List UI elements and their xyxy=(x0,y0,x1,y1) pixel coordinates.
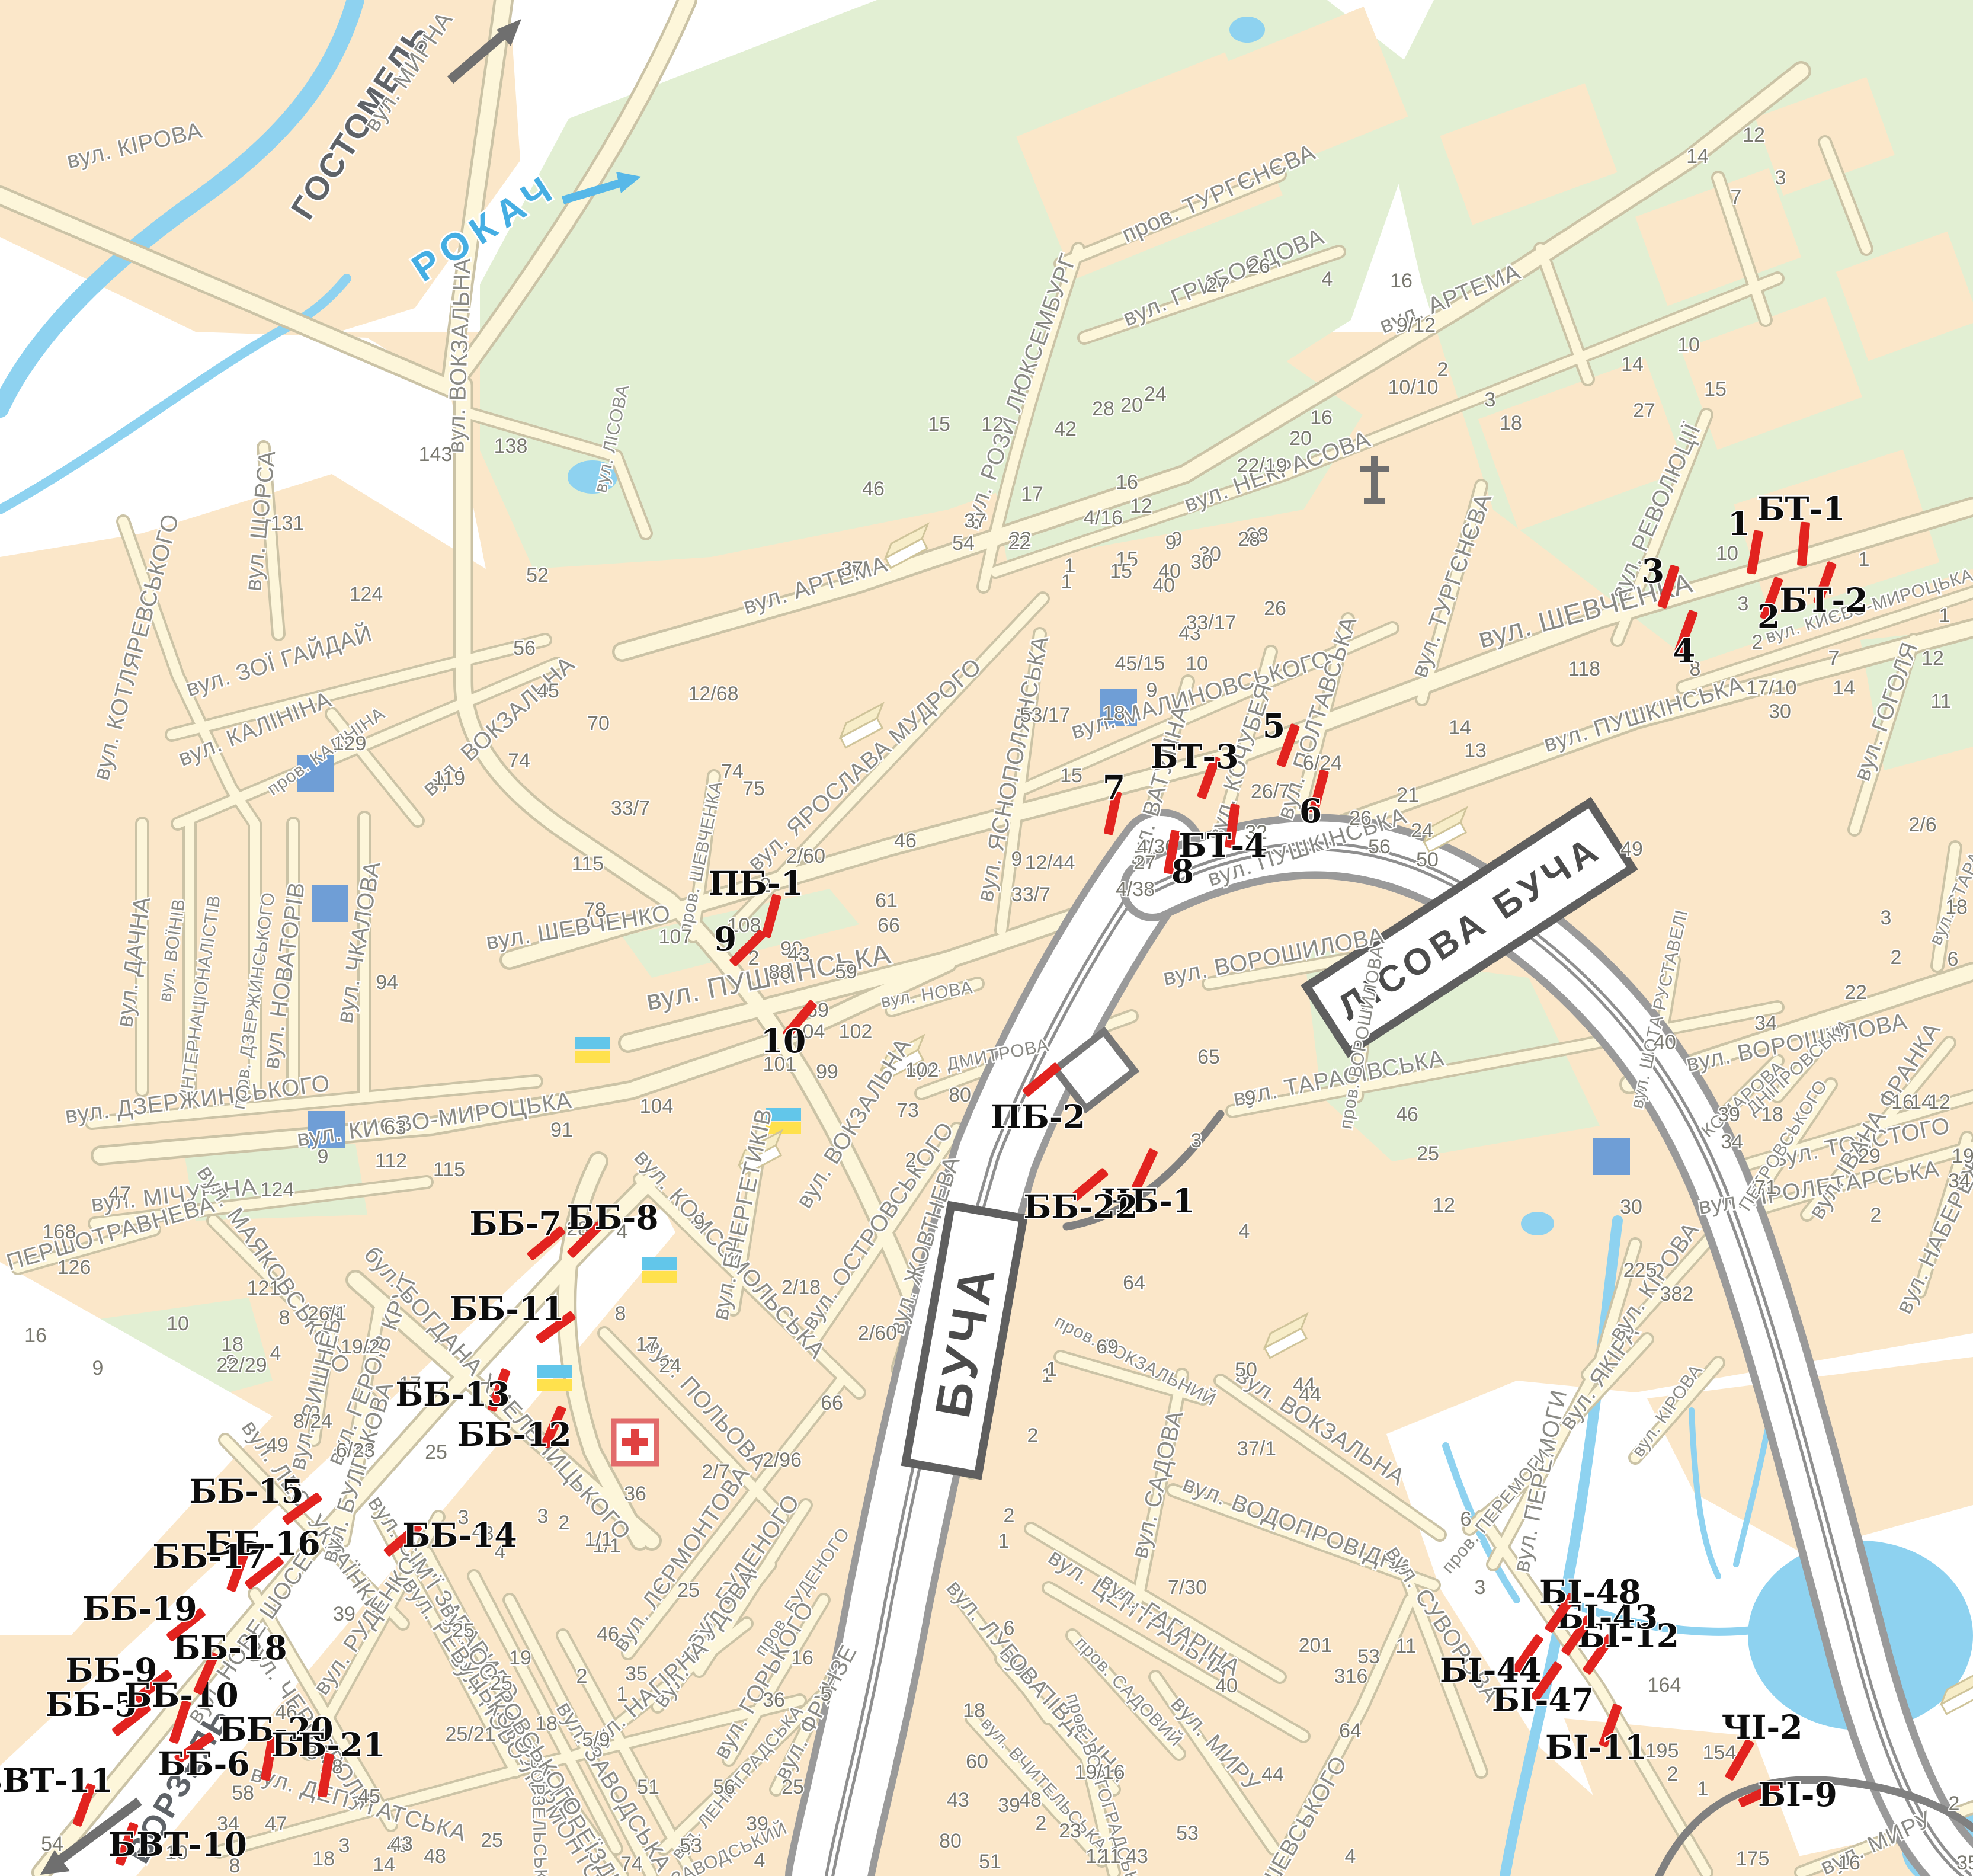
house-number: 15 xyxy=(1704,378,1727,401)
house-number: 126 xyxy=(57,1256,91,1279)
billboard-label-ПБ-1: ПБ-1 xyxy=(709,864,803,902)
house-number: 58 xyxy=(232,1782,254,1804)
house-number: 9 xyxy=(1146,679,1158,702)
house-number: 3 xyxy=(1738,593,1749,615)
house-number: 42 xyxy=(1054,418,1077,440)
house-number: 7 xyxy=(1828,647,1840,670)
house-number: 12 xyxy=(1921,647,1944,670)
city-map: ЛІСОВА БУЧА БУЧА ГОСТОМЕЛЬ ВОРЗЕЛЬ РОКАЧ… xyxy=(0,0,1973,1876)
house-number: 1 xyxy=(1859,548,1870,571)
house-number: 18 xyxy=(1103,702,1125,725)
billboard-label-10: 10 xyxy=(761,1022,806,1060)
blue-building-icon xyxy=(312,885,348,922)
house-number: 19 xyxy=(1952,1145,1973,1167)
house-number: 28 xyxy=(1092,398,1114,420)
billboard-label-ЧІ-2: ЧІ-2 xyxy=(1721,1708,1802,1746)
house-number: 99 xyxy=(816,1061,838,1083)
house-number: 25/21 xyxy=(445,1723,495,1746)
house-number: 34 xyxy=(1721,1131,1743,1153)
house-number: 43 xyxy=(1126,1845,1148,1868)
house-number: 34 xyxy=(1948,1170,1971,1192)
house-number: 53 xyxy=(1176,1822,1199,1845)
house-number: 3 xyxy=(1881,907,1892,929)
house-number: 18 xyxy=(535,1712,558,1735)
house-number: 36 xyxy=(624,1483,646,1505)
house-number: 1 xyxy=(1939,604,1950,627)
house-number: 6 xyxy=(1948,948,1959,971)
house-number: 66 xyxy=(877,914,900,937)
billboard-label-9: 9 xyxy=(714,920,736,958)
house-number: 74 xyxy=(721,760,744,783)
house-number: 9/12 xyxy=(1397,314,1436,337)
house-number: 20 xyxy=(1120,394,1143,417)
house-number: 33/17 xyxy=(1186,612,1236,634)
billboard-label-1: 1 xyxy=(1728,504,1750,543)
house-number: 201 xyxy=(1299,1634,1333,1657)
house-number: 51 xyxy=(979,1851,1001,1873)
house-number: 14 xyxy=(1833,677,1855,699)
house-number: 39 xyxy=(998,1794,1020,1817)
house-number: 129 xyxy=(333,732,367,755)
house-number: 46 xyxy=(862,478,885,500)
house-number: 24 xyxy=(1144,383,1167,405)
house-number: 13 xyxy=(1464,739,1487,762)
billboard-label-БІ-47: БІ-47 xyxy=(1492,1680,1594,1719)
house-number: 30 xyxy=(1769,700,1791,723)
house-number: 23 xyxy=(1059,1820,1081,1842)
house-number: 8 xyxy=(615,1302,626,1325)
house-number: 2 xyxy=(1949,1792,1960,1815)
house-number: 102 xyxy=(905,1059,939,1081)
house-number: 61 xyxy=(875,889,898,912)
house-number: 54 xyxy=(41,1833,63,1855)
house-number: 2 xyxy=(576,1665,588,1688)
house-number: 6 xyxy=(1460,1508,1472,1531)
house-number: 9 xyxy=(694,1211,705,1234)
billboard-label-ПБ-2: ПБ-2 xyxy=(991,1097,1085,1136)
house-number: 12/68 xyxy=(688,683,738,705)
house-number: 3 xyxy=(1475,1576,1486,1599)
house-number: 26/1 xyxy=(308,1302,347,1325)
house-number: 2/6 xyxy=(1908,814,1936,836)
house-number: 4 xyxy=(270,1342,281,1365)
house-number: 66 xyxy=(821,1392,843,1414)
house-number: 53 xyxy=(680,1835,702,1857)
house-number: 1 xyxy=(1046,1358,1058,1381)
house-number: 118 xyxy=(1568,658,1600,680)
house-number: 16 xyxy=(1390,270,1413,292)
house-number: 10 xyxy=(1716,542,1738,565)
house-number: 37 xyxy=(964,510,986,532)
house-number: 78 xyxy=(584,899,606,921)
house-number: 4 xyxy=(1322,268,1333,290)
house-number: 80 xyxy=(939,1830,962,1852)
house-number: 15 xyxy=(1060,764,1082,787)
house-number: 22/19 xyxy=(1237,454,1287,477)
house-number: 14 xyxy=(1686,145,1709,168)
house-number: 107 xyxy=(659,926,693,948)
house-number: 102 xyxy=(839,1020,873,1043)
house-number: 47 xyxy=(265,1813,287,1835)
house-number: 2 xyxy=(1870,1204,1882,1227)
billboard-label-ББ-6: ББ-6 xyxy=(158,1744,249,1783)
house-number: 16 xyxy=(1116,471,1138,494)
house-number: 10 xyxy=(1186,652,1208,675)
house-number: 25 xyxy=(425,1441,447,1464)
house-number: 1 xyxy=(617,1683,628,1705)
house-number: 24 xyxy=(659,1355,681,1377)
house-number: 26 xyxy=(1264,597,1286,620)
house-number: 2 xyxy=(1004,1504,1015,1527)
billboard-label-БТ-2: БТ-2 xyxy=(1779,581,1868,619)
house-number: 2/60 xyxy=(858,1322,897,1344)
billboard-label-ББ-13: ББ-13 xyxy=(395,1375,510,1413)
house-number: 12 xyxy=(1433,1194,1455,1216)
house-number: 316 xyxy=(1334,1665,1368,1688)
house-number: 43 xyxy=(787,943,810,966)
billboard-label-ББ-10: ББ-10 xyxy=(124,1676,238,1714)
billboard-label-БІ-11: БІ-11 xyxy=(1545,1728,1647,1766)
house-number: 11 xyxy=(1100,1845,1120,1868)
house-number: 16 xyxy=(1310,406,1333,429)
house-number: 22 xyxy=(1008,532,1030,554)
house-number: 8 xyxy=(279,1307,290,1329)
house-number: 25 xyxy=(677,1579,700,1602)
billboard-label-ББ-8: ББ-8 xyxy=(566,1198,658,1237)
billboard-label-БТ-1: БТ-1 xyxy=(1757,489,1845,528)
house-number: 5/9 xyxy=(582,1728,610,1751)
house-number: 74 xyxy=(620,1853,643,1875)
house-number: 56 xyxy=(713,1776,735,1798)
house-number: 59 xyxy=(835,961,857,983)
billboard-label-ББ-21: ББ-21 xyxy=(271,1725,385,1764)
house-number: 29 xyxy=(1858,1145,1881,1167)
house-number: 24 xyxy=(1411,819,1433,842)
house-number: 12 xyxy=(981,413,1004,436)
house-number: 22/29 xyxy=(216,1354,267,1376)
house-number: 15 xyxy=(1110,560,1132,582)
house-number: 12/44 xyxy=(1024,851,1075,874)
billboard-label-БВТ-10: БВТ-10 xyxy=(108,1825,247,1864)
house-number: 45/15 xyxy=(1114,652,1165,675)
house-number: 53/17 xyxy=(1020,704,1070,726)
house-number: 7 xyxy=(1731,186,1742,209)
house-number: 14 xyxy=(1449,716,1471,739)
house-number: 36 xyxy=(763,1689,785,1711)
house-number: 119 xyxy=(433,767,465,790)
house-number: 11 xyxy=(1930,690,1951,713)
house-number: 46 xyxy=(894,830,917,852)
house-number: 2 xyxy=(559,1512,570,1534)
house-number: 175 xyxy=(1736,1848,1770,1870)
billboard-label-БТ-3: БТ-3 xyxy=(1150,737,1238,776)
house-number: 28 xyxy=(1238,528,1260,550)
house-number: 26 xyxy=(1248,255,1270,277)
house-number: 6 xyxy=(1004,1617,1015,1640)
billboard-label-ББ-12: ББ-12 xyxy=(457,1415,571,1454)
billboard-label-ББ-19: ББ-19 xyxy=(82,1589,197,1628)
house-number: 195 xyxy=(1645,1740,1679,1762)
house-number: 9 xyxy=(318,1145,329,1168)
house-number: 4 xyxy=(754,1849,766,1872)
house-number: 39 xyxy=(1718,1103,1740,1126)
house-number: 16 xyxy=(24,1324,47,1347)
house-number: 1 xyxy=(998,1530,1010,1552)
house-number: 1/1 xyxy=(584,1528,612,1551)
house-number: 33/7 xyxy=(1011,883,1050,906)
house-number: 11 xyxy=(1395,1635,1416,1657)
billboard-label-6: 6 xyxy=(1299,792,1322,830)
billboard-label-БВТ-11: БВТ-11 xyxy=(0,1761,113,1800)
house-number: 44 xyxy=(1261,1763,1284,1786)
house-number: 112 xyxy=(375,1150,407,1172)
house-number: 124 xyxy=(350,583,383,606)
house-number: 35 xyxy=(1956,1852,1973,1874)
house-number: 49 xyxy=(266,1434,289,1456)
house-number: 10/10 xyxy=(1388,376,1438,399)
house-number: 143 xyxy=(419,443,453,466)
house-number: 14 xyxy=(1621,353,1644,376)
house-number: 6/23 xyxy=(336,1439,375,1462)
house-number: 25 xyxy=(490,1672,513,1695)
house-number: 9 xyxy=(1165,532,1177,554)
house-number: 2 xyxy=(1437,358,1449,381)
house-number: 4 xyxy=(1239,1220,1250,1243)
billboard-label-ББ-18: ББ-18 xyxy=(172,1628,287,1667)
house-number: 75 xyxy=(742,777,765,800)
house-number: 5 xyxy=(821,1683,832,1705)
house-number: 43 xyxy=(390,1833,413,1855)
house-number: 50 xyxy=(1235,1359,1257,1381)
house-number: 3 xyxy=(1191,1129,1202,1152)
house-number: 26 xyxy=(1349,807,1372,830)
house-number: 54 xyxy=(952,532,975,555)
house-number: 40 xyxy=(1215,1675,1238,1697)
house-number: 69 xyxy=(1096,1336,1119,1358)
house-number: 10 xyxy=(166,1312,189,1335)
blue-building-icon xyxy=(1593,1138,1630,1175)
house-number: 27 xyxy=(1133,851,1156,874)
house-number: 30 xyxy=(1190,551,1213,574)
house-number: 12 xyxy=(1928,1091,1950,1113)
house-number: 10 xyxy=(1677,334,1700,356)
house-number: 73 xyxy=(896,1099,919,1122)
house-number: 37 xyxy=(841,558,863,580)
house-number: 15 xyxy=(928,413,950,436)
billboard-label-ББ-7: ББ-7 xyxy=(469,1204,561,1243)
house-number: 17 xyxy=(636,1333,658,1356)
house-number: 46 xyxy=(597,1623,619,1645)
house-number: 121 xyxy=(247,1277,281,1299)
house-number: 65 xyxy=(1197,1046,1220,1068)
house-number: 18 xyxy=(312,1848,335,1870)
house-number: 94 xyxy=(376,971,398,994)
house-number: 18 xyxy=(963,1699,985,1722)
house-number: 44 xyxy=(1299,1384,1321,1406)
house-number: 74 xyxy=(508,750,530,772)
house-number: 37/1 xyxy=(1237,1438,1276,1460)
house-number: 9 xyxy=(1011,848,1023,870)
house-number: 25 xyxy=(452,1619,475,1642)
house-number: 19/16 xyxy=(1074,1761,1125,1784)
house-number: 12 xyxy=(1130,495,1152,517)
house-number: 25 xyxy=(481,1829,503,1852)
house-number: 3 xyxy=(1775,167,1786,189)
house-number: 19 xyxy=(509,1647,531,1669)
house-number: 12 xyxy=(1743,124,1765,146)
house-number: 39 xyxy=(333,1603,355,1625)
house-number: 30 xyxy=(1620,1196,1642,1218)
house-number: 2 xyxy=(905,1149,917,1171)
house-number: 20 xyxy=(1289,427,1312,450)
house-number: 56 xyxy=(1368,835,1391,858)
house-number: 64 xyxy=(1123,1272,1145,1294)
house-number: 131 xyxy=(271,512,305,534)
house-number: 35 xyxy=(625,1663,648,1685)
billboard-label-БТ-4: БТ-4 xyxy=(1178,826,1267,865)
house-number: 2 xyxy=(1027,1424,1039,1447)
billboard-label-5: 5 xyxy=(1263,706,1285,745)
house-number: 71 xyxy=(1754,1176,1777,1199)
billboard-label-4: 4 xyxy=(1673,632,1695,670)
house-number: 60 xyxy=(966,1750,988,1773)
house-number: 49 xyxy=(1620,838,1643,860)
house-number: 104 xyxy=(640,1095,674,1118)
house-number: 18 xyxy=(1761,1103,1783,1126)
billboard-label-ББ-14: ББ-14 xyxy=(402,1516,517,1554)
billboard-label-БІ-48: БІ-48 xyxy=(1539,1573,1641,1611)
house-number: 17/10 xyxy=(1746,677,1796,699)
house-number: 1 xyxy=(1061,571,1072,593)
house-number: 70 xyxy=(587,712,610,735)
house-number: 25 xyxy=(1417,1142,1439,1165)
house-number: 18 xyxy=(1945,896,1968,918)
billboard-label-7: 7 xyxy=(1103,768,1125,806)
house-number: 22 xyxy=(1844,981,1867,1004)
house-number: 115 xyxy=(572,853,604,875)
house-number: 3 xyxy=(537,1505,549,1528)
house-number: 382 xyxy=(1660,1283,1694,1305)
house-number: 124 xyxy=(261,1179,294,1201)
house-number: 16 xyxy=(791,1647,813,1669)
house-number: 3 xyxy=(339,1835,350,1857)
billboard-label-3: 3 xyxy=(1642,552,1664,590)
house-number: 115 xyxy=(433,1158,465,1181)
house-number: 48 xyxy=(1019,1789,1042,1811)
billboard-label-ББ-22: ББ-22 xyxy=(1023,1187,1138,1226)
house-number: 26/7 xyxy=(1251,780,1290,803)
house-number: 56 xyxy=(513,637,536,660)
house-number: 27 xyxy=(1633,399,1655,422)
house-number: 47 xyxy=(108,1183,131,1205)
house-number: 3 xyxy=(1485,389,1496,411)
house-number: 138 xyxy=(494,435,528,457)
house-number: 64 xyxy=(1339,1720,1362,1742)
house-number: 4/16 xyxy=(1084,507,1123,529)
house-number: 39 xyxy=(746,1813,768,1835)
house-number: 40 xyxy=(1152,574,1175,597)
billboard-label-БІ-9: БІ-9 xyxy=(1758,1775,1837,1814)
house-number: 1 xyxy=(1697,1778,1709,1800)
house-number: 7/30 xyxy=(1168,1576,1207,1599)
house-number: 4 xyxy=(1345,1845,1356,1868)
map-canvas: ЛІСОВА БУЧА БУЧА ГОСТОМЕЛЬ ВОРЗЕЛЬ РОКАЧ… xyxy=(0,0,1973,1876)
house-number: 50 xyxy=(1416,849,1439,871)
house-number: 4/38 xyxy=(1116,878,1155,901)
house-number: 225 xyxy=(1623,1259,1657,1282)
house-number: 45 xyxy=(537,680,559,702)
house-number: 9 xyxy=(92,1357,104,1379)
house-number: 16 xyxy=(1838,1852,1860,1874)
house-number: 91 xyxy=(550,1119,573,1141)
house-number: 63 xyxy=(384,1116,406,1139)
pond-lisova xyxy=(1521,1212,1554,1235)
billboard-label-ББ-5: ББ-5 xyxy=(45,1685,137,1724)
house-number: 34 xyxy=(1754,1012,1777,1035)
pond-top xyxy=(1229,17,1265,43)
house-number: 168 xyxy=(43,1221,76,1243)
house-number: 2/96 xyxy=(763,1449,802,1471)
house-number: 80 xyxy=(949,1084,971,1106)
house-number: 33/7 xyxy=(611,797,650,819)
house-number: 2/7 xyxy=(702,1461,729,1483)
house-number: 14 xyxy=(373,1853,395,1876)
house-number: 25 xyxy=(781,1776,804,1798)
billboard-label-ББ-15: ББ-15 xyxy=(189,1472,303,1510)
house-number: 52 xyxy=(526,564,549,587)
house-number: 2 xyxy=(1036,1812,1047,1835)
house-number: 45 xyxy=(358,1785,380,1808)
house-number: 8/24 xyxy=(293,1410,332,1433)
house-number: 27 xyxy=(1206,274,1229,296)
billboard-label-2: 2 xyxy=(1757,597,1780,636)
house-number: 19/2 xyxy=(341,1336,380,1358)
billboard-label-ББ-17: ББ-17 xyxy=(152,1537,267,1576)
house-number: 2 xyxy=(1891,946,1902,969)
house-number: 9 xyxy=(1245,1087,1256,1109)
house-number: 18 xyxy=(1500,412,1522,434)
house-number: 21 xyxy=(1397,784,1419,806)
house-number: 2 xyxy=(1667,1763,1679,1785)
house-number: 40 xyxy=(1654,1031,1676,1054)
billboard-label-ББ-11: ББ-11 xyxy=(450,1289,564,1328)
house-number: 164 xyxy=(1648,1674,1681,1696)
house-number: 2/18 xyxy=(781,1276,821,1299)
house-number: 46 xyxy=(1396,1103,1418,1126)
house-number: 17 xyxy=(1021,483,1043,505)
hospital-icon xyxy=(614,1421,656,1464)
house-number: 48 xyxy=(424,1845,446,1868)
house-number: 43 xyxy=(947,1789,969,1811)
house-number: 18 xyxy=(221,1333,244,1356)
house-number: 51 xyxy=(637,1776,659,1798)
